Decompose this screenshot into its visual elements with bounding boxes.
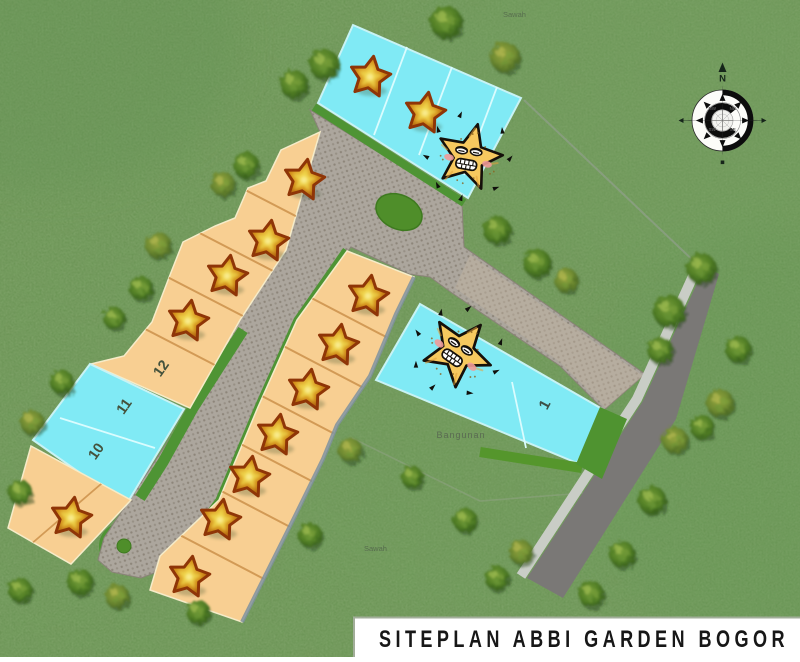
svg-text:SITEPLAN ABBI GARDEN BOGOR: SITEPLAN ABBI GARDEN BOGOR [379, 626, 789, 653]
svg-text:SE: SE [730, 127, 736, 132]
svg-text:SW: SW [709, 127, 717, 132]
svg-text:NE: NE [730, 106, 736, 111]
svg-text:Sawah: Sawah [364, 544, 387, 553]
svg-text:Bangunan: Bangunan [436, 430, 485, 440]
svg-text:NW: NW [708, 106, 716, 111]
svg-text:Sawah: Sawah [503, 10, 526, 19]
svg-text:N: N [719, 74, 726, 85]
